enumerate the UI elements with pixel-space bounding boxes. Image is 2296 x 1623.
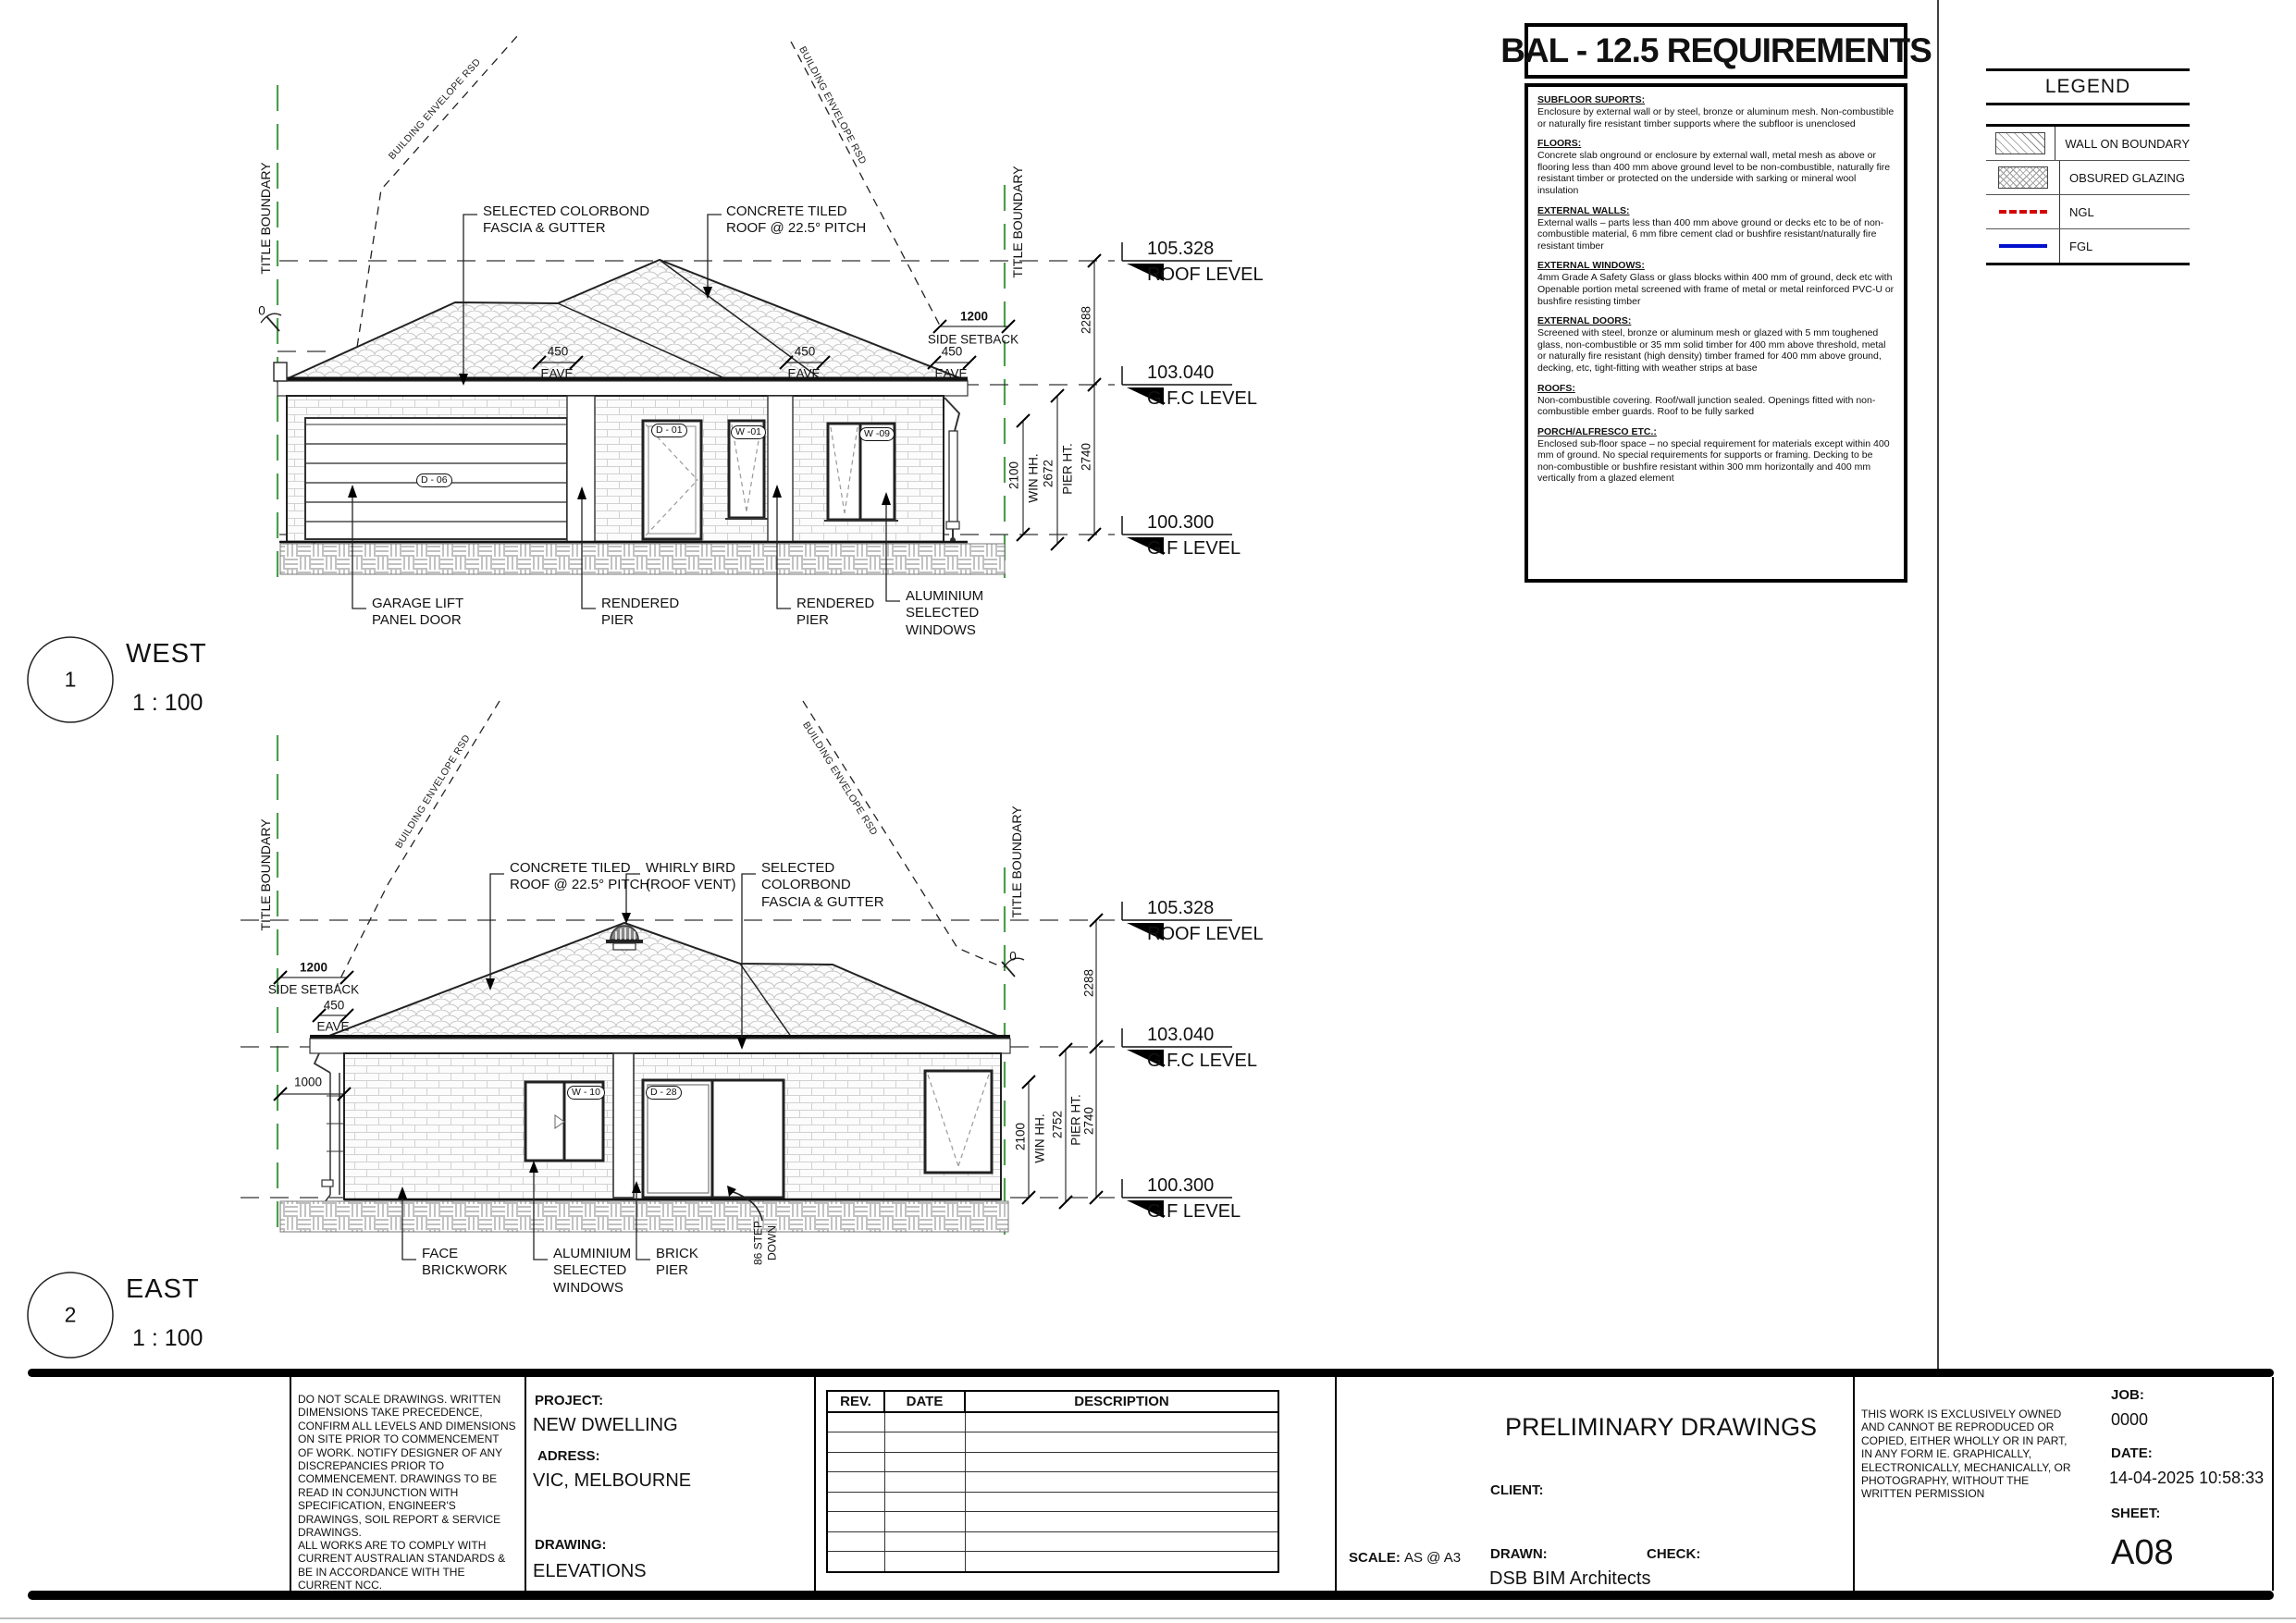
west-gutter-band <box>278 381 968 396</box>
east-label-roof: CONCRETE TILED ROOF @ 22.5° PITCH <box>510 860 649 894</box>
west-rendered-pier-2 <box>768 396 793 542</box>
west-downpipe <box>944 398 959 543</box>
titleblock-divider <box>525 1377 526 1591</box>
titleblock-notes-2: ALL WORKS ARE TO COMPLY WITH CURRENT AUS… <box>298 1539 520 1592</box>
project-label: PROJECT: <box>535 1393 603 1408</box>
revision-row <box>827 1512 1278 1532</box>
east-dim-winhh-value: 2100 <box>1014 1123 1028 1150</box>
legend-row-ngl: NGL <box>1986 195 2190 229</box>
legend-title: LEGEND <box>1986 68 2190 105</box>
west-label-rendered-pier-1: RENDERED PIER <box>601 596 679 630</box>
east-dim-pier-label: PIER HT. <box>1069 1094 1083 1146</box>
west-door-d01 <box>643 421 701 539</box>
east-dim-setback-label: SIDE SETBACK <box>268 983 359 997</box>
legend-row-wall-on-boundary: WALL ON BOUNDARY <box>1986 127 2190 161</box>
titleblock-divider <box>2272 1377 2274 1591</box>
west-dim-2288: 2288 <box>1080 306 1093 334</box>
east-label-step-down: 86 STEP DOWN <box>751 1221 778 1265</box>
east-dim-2740: 2740 <box>1082 1107 1096 1135</box>
titleblock-top-bar <box>28 1369 2274 1377</box>
west-dim-winhh-label: WIN HH. <box>1027 453 1041 502</box>
bal-section-body: Enclosure by external wall or by steel, … <box>1537 106 1895 129</box>
revision-row <box>827 1412 1278 1432</box>
east-gf-level-name: G.F LEVEL <box>1147 1201 1241 1223</box>
address-label: ADRESS: <box>537 1448 600 1464</box>
client-label: CLIENT: <box>1490 1482 1544 1498</box>
drawing-sheet: SELECTED COLORBOND FASCIA & GUTTER CONCR… <box>0 0 2296 1623</box>
revision-row <box>827 1452 1278 1472</box>
blue-solid-line-swatch <box>1999 244 2047 248</box>
drawing-value: ELEVATIONS <box>533 1561 647 1582</box>
bal-body: SUBFLOOR SUPORTS: Enclosure by external … <box>1524 83 1907 583</box>
east-gfc-level-value: 103.040 <box>1147 1025 1214 1046</box>
description-header: DESCRIPTION <box>965 1391 1278 1412</box>
revision-row <box>827 1492 1278 1512</box>
east-dim-1000: 1000 <box>294 1076 322 1089</box>
east-view-number: 2 <box>65 1303 77 1328</box>
east-dim-setback-value: 1200 <box>300 961 327 975</box>
scale-label: SCALE: <box>1349 1550 1401 1566</box>
titleblock-notes-1: DO NOT SCALE DRAWINGS. WRITTEN DIMENSION… <box>298 1393 516 1539</box>
west-dim-eave1-value: 450 <box>548 345 569 359</box>
revision-table: REV. DATE DESCRIPTION <box>826 1390 1279 1573</box>
scale-value: AS @ A3 <box>1404 1550 1461 1566</box>
east-title-boundary-right-text: TITLE BOUNDARY <box>1009 805 1024 917</box>
east-gf-level-value: 100.300 <box>1147 1175 1214 1197</box>
sheet-value: A08 <box>2111 1533 2174 1573</box>
west-dim-pier-label: PIER HT. <box>1061 443 1075 495</box>
sheet-label: SHEET: <box>2111 1506 2160 1521</box>
bal-section-heading: EXTERNAL DOORS: <box>1537 315 1895 327</box>
legend: LEGEND WALL ON BOUNDARY OBSURED GLAZING … <box>1986 68 2190 265</box>
revision-row <box>827 1531 1278 1552</box>
east-view-name: EAST <box>126 1274 200 1305</box>
west-gfc-level-value: 103.040 <box>1147 363 1214 384</box>
east-zero-setback-text: 0 <box>1009 950 1017 964</box>
revision-row <box>827 1432 1278 1453</box>
bal-section-heading: EXTERNAL WALLS: <box>1537 205 1895 217</box>
revision-row <box>827 1472 1278 1493</box>
bal-section-heading: SUBFLOOR SUPORTS: <box>1537 94 1895 106</box>
drawn-label: DRAWN: <box>1490 1546 1548 1562</box>
east-label-brick-pier: BRICK PIER <box>656 1246 698 1280</box>
bal-section-body: Concrete slab onground or enclosure by e… <box>1537 150 1895 196</box>
copyright-text: THIS WORK IS EXCLUSIVELY OWNED AND CANNO… <box>1861 1408 2076 1501</box>
address-value: VIC, MELBOURNE <box>533 1470 691 1492</box>
west-tag-door-d01: D - 01 <box>651 424 687 437</box>
east-tag-door-d28: D - 28 <box>646 1086 682 1100</box>
bal-title: BAL - 12.5 REQUIREMENTS <box>1524 23 1907 79</box>
bal-section-heading: FLOORS: <box>1537 138 1895 150</box>
west-roof <box>282 260 968 381</box>
east-label-colorbond: SELECTED COLORBOND FASCIA & GUTTER <box>761 860 884 911</box>
bal-section-body: External walls – parts less than 400 mm … <box>1537 217 1895 252</box>
bal-requirements-box: BAL - 12.5 REQUIREMENTS SUBFLOOR SUPORTS… <box>1524 23 1907 583</box>
west-label-colorbond: SELECTED COLORBOND FASCIA & GUTTER <box>483 203 649 238</box>
west-title-boundary-left-text: TITLE BOUNDARY <box>258 162 273 274</box>
legend-label: FGL <box>2060 240 2092 253</box>
west-dim-eave2-value: 450 <box>795 345 816 359</box>
west-dim-2740: 2740 <box>1080 443 1093 471</box>
west-view-scale: 1 : 100 <box>132 690 203 717</box>
bal-section-body: Non-combustible covering. Roof/wall junc… <box>1537 395 1895 418</box>
east-dim-pier-value: 2752 <box>1051 1111 1065 1138</box>
date-header: DATE <box>884 1391 965 1412</box>
legend-row-obscured-glazing: OBSURED GLAZING <box>1986 161 2190 195</box>
west-dim-eave2-label: EAVE <box>787 367 820 381</box>
rev-header: REV. <box>827 1391 884 1412</box>
west-label-roof: CONCRETE TILED ROOF @ 22.5° PITCH <box>726 203 866 238</box>
east-label-face-brickwork: FACE BRICKWORK <box>422 1246 508 1280</box>
titleblock-divider <box>1853 1377 1855 1591</box>
date-label: DATE: <box>2111 1445 2153 1461</box>
east-roof-level-name: ROOF LEVEL <box>1147 924 1264 945</box>
bal-section-body: Enclosed sub-floor space – no special re… <box>1537 438 1895 485</box>
west-title-boundary-right-text: TITLE BOUNDARY <box>1010 166 1025 277</box>
west-dim-pier-value: 2672 <box>1042 460 1055 487</box>
west-dim-eave3-value: 450 <box>942 345 963 359</box>
titleblock-divider <box>1335 1377 1337 1591</box>
project-value: NEW DWELLING <box>533 1415 678 1436</box>
status-preliminary-drawings: PRELIMINARY DRAWINGS <box>1505 1413 1817 1442</box>
west-roof-level-value: 105.328 <box>1147 239 1214 260</box>
east-ground-hatch <box>280 1201 1008 1232</box>
bal-section-body: 4mm Grade A Safety Glass or glass blocks… <box>1537 272 1895 307</box>
legend-row-fgl: FGL <box>1986 229 2190 263</box>
east-gutter-band <box>310 1039 1010 1053</box>
red-dashed-line-swatch <box>1999 210 2047 214</box>
west-boundary-wall-cap <box>274 363 287 381</box>
east-brick-pier <box>613 1053 634 1198</box>
west-gf-level-value: 100.300 <box>1147 512 1214 534</box>
job-value: 0000 <box>2111 1410 2148 1430</box>
west-zero-setback-text: 0 <box>258 304 265 318</box>
west-dim-eave3-label: EAVE <box>934 367 967 381</box>
west-gfc-level-name: G.F.C LEVEL <box>1147 388 1257 410</box>
west-label-garage-door: GARAGE LIFT PANEL DOOR <box>372 596 463 630</box>
west-ground-hatch <box>280 544 1005 574</box>
titleblock-divider <box>814 1377 816 1591</box>
titleblock-divider <box>290 1377 291 1591</box>
east-label-whirly-bird: WHIRLY BIRD (ROOF VENT) <box>646 860 736 894</box>
west-dim-eave1-label: EAVE <box>540 367 573 381</box>
legend-label: OBSURED GLAZING <box>2060 171 2185 185</box>
check-label: CHECK: <box>1647 1546 1700 1562</box>
east-roof <box>315 923 1008 1041</box>
west-view-number: 1 <box>65 668 77 693</box>
west-roof-level-name: ROOF LEVEL <box>1147 264 1264 286</box>
east-label-windows: ALUMINIUM SELECTED WINDOWS <box>553 1246 631 1297</box>
drawn-value: DSB BIM Architects <box>1489 1568 1651 1590</box>
east-tag-window-w10: W - 10 <box>567 1086 605 1100</box>
west-view-name: WEST <box>126 639 207 670</box>
west-label-rendered-pier-2: RENDERED PIER <box>796 596 874 630</box>
east-dim-eave-value: 450 <box>324 999 345 1013</box>
legend-label: WALL ON BOUNDARY <box>2055 137 2190 151</box>
job-label: JOB: <box>2111 1387 2144 1403</box>
east-dim-2288: 2288 <box>1082 969 1096 997</box>
bal-section-heading: EXTERNAL WINDOWS: <box>1537 260 1895 272</box>
east-dim-eave-label: EAVE <box>316 1020 349 1034</box>
bal-section-body: Screened with steel, bronze or aluminum … <box>1537 327 1895 374</box>
west-rendered-pier-1 <box>567 396 595 542</box>
diagonal-hatch-swatch <box>1995 132 2045 154</box>
cross-hatch-swatch <box>1998 166 2048 189</box>
date-value: 14-04-2025 10:58:33 <box>2109 1469 2264 1488</box>
drawing-label: DRAWING: <box>535 1537 607 1553</box>
east-gfc-level-name: G.F.C LEVEL <box>1147 1051 1257 1072</box>
east-window-right <box>925 1071 992 1173</box>
revision-row <box>827 1552 1278 1572</box>
bal-section-heading: PORCH/ALFRESCO ETC.: <box>1537 426 1895 438</box>
legend-label: NGL <box>2060 205 2094 219</box>
east-view-scale: 1 : 100 <box>132 1325 203 1352</box>
west-label-windows: ALUMINIUM SELECTED WINDOWS <box>906 588 983 639</box>
east-roof-level-value: 105.328 <box>1147 898 1214 919</box>
east-title-boundary-left-text: TITLE BOUNDARY <box>258 818 273 930</box>
west-tag-garage-door: D - 06 <box>416 473 452 487</box>
west-gf-level-name: G.F LEVEL <box>1147 538 1241 559</box>
west-dim-setback-value: 1200 <box>960 310 988 324</box>
west-dim-winhh-value: 2100 <box>1007 461 1021 489</box>
east-dim-winhh-label: WIN HH. <box>1033 1113 1047 1162</box>
west-tag-window-w09: W -09 <box>859 427 895 441</box>
bal-section-heading: ROOFS: <box>1537 383 1895 395</box>
west-tag-window-w01: W -01 <box>731 425 766 439</box>
